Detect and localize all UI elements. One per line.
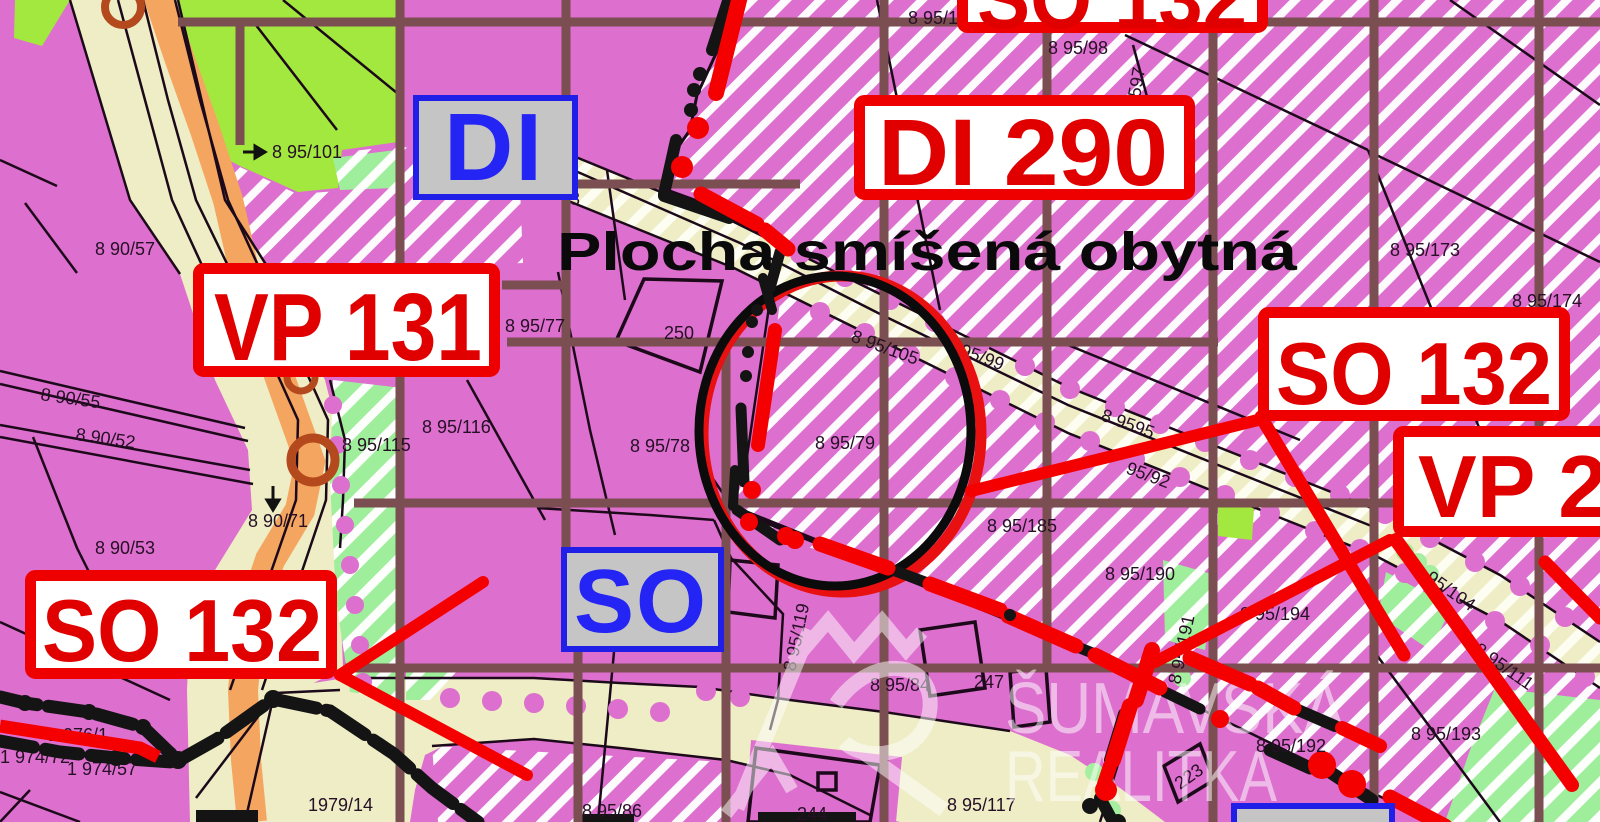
svg-text:247: 247 — [974, 672, 1004, 692]
svg-text:250: 250 — [664, 323, 694, 343]
svg-text:DI 290: DI 290 — [878, 100, 1168, 206]
svg-text:8 95/86: 8 95/86 — [582, 801, 642, 821]
svg-text:8 95/77: 8 95/77 — [505, 316, 565, 336]
svg-text:8 95/115: 8 95/115 — [342, 435, 411, 455]
svg-text:8 95/101: 8 95/101 — [272, 142, 342, 162]
svg-text:8 90/53: 8 90/53 — [95, 538, 155, 558]
svg-text:SO 132: SO 132 — [977, 0, 1247, 47]
svg-text:8 95/193: 8 95/193 — [1411, 724, 1481, 744]
svg-text:244: 244 — [797, 804, 827, 822]
svg-text:1979/14: 1979/14 — [308, 795, 373, 815]
svg-text:8 95/192: 8 95/192 — [1256, 736, 1326, 756]
svg-text:SO 132: SO 132 — [1276, 324, 1552, 423]
svg-text:8 95/173: 8 95/173 — [1390, 240, 1460, 260]
svg-text:8 95/185: 8 95/185 — [987, 516, 1057, 536]
svg-text:8 95/190: 8 95/190 — [1105, 564, 1175, 584]
svg-text:VP 2: VP 2 — [1418, 437, 1600, 536]
svg-text:SO: SO — [574, 552, 708, 652]
svg-text:Plocha smíšená obytná: Plocha smíšená obytná — [557, 222, 1298, 282]
svg-text:VP 131: VP 131 — [214, 274, 482, 381]
svg-text:SO 132: SO 132 — [42, 581, 322, 680]
svg-text:8 90/71: 8 90/71 — [248, 511, 308, 531]
svg-text:8 95/79: 8 95/79 — [815, 433, 875, 453]
svg-text:DI: DI — [444, 94, 544, 201]
svg-text:8 95/116: 8 95/116 — [422, 417, 491, 437]
svg-text:8 90/57: 8 90/57 — [95, 239, 155, 259]
svg-text:8 95/78: 8 95/78 — [630, 436, 690, 456]
